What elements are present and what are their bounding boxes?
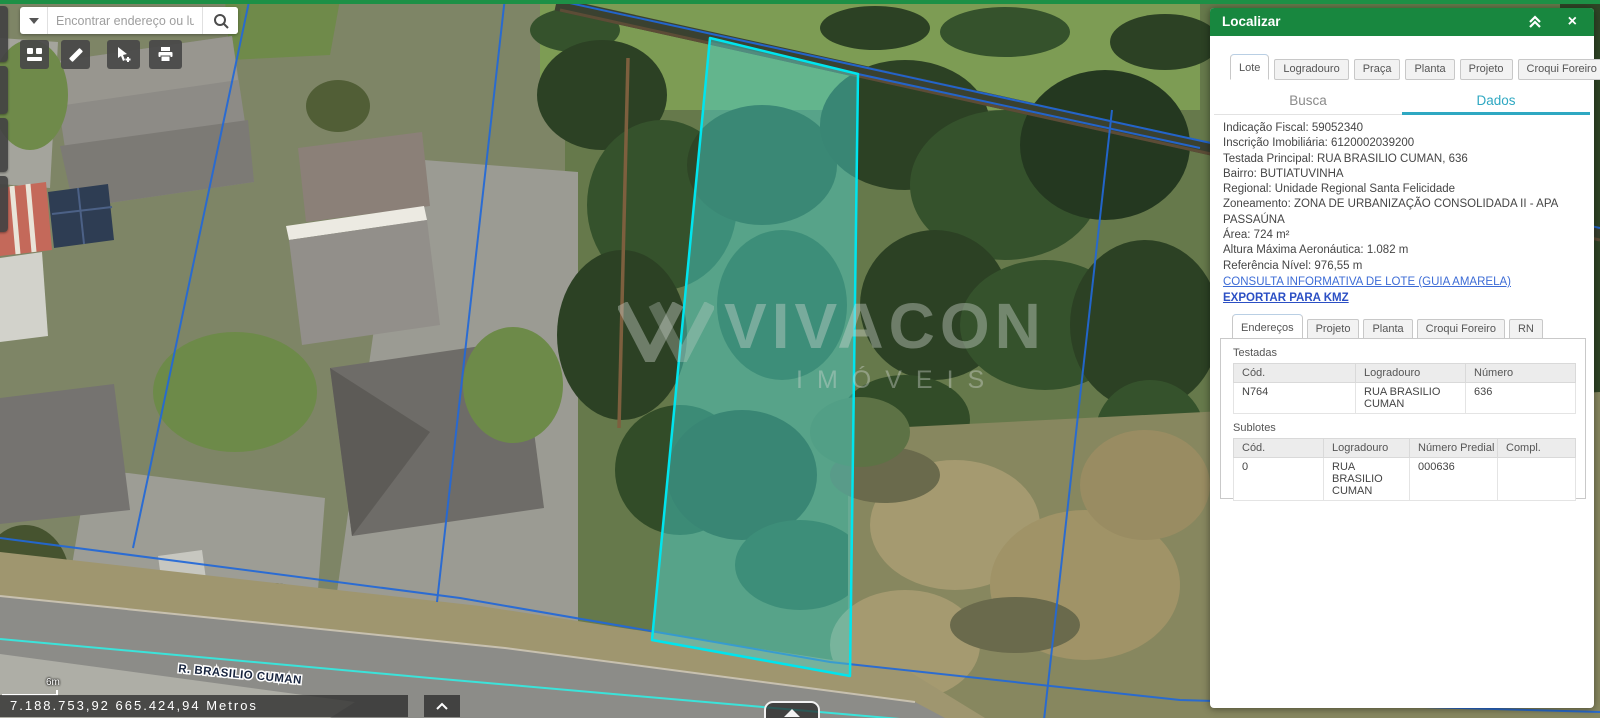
search-button[interactable]: [202, 7, 238, 34]
segment-busca[interactable]: Busca: [1214, 90, 1402, 115]
search-control: [20, 7, 238, 34]
sublotes-logradouro: RUA BRASILIO CUMAN: [1324, 458, 1410, 501]
tab-inner-croqui-foreiro[interactable]: Croqui Foreiro: [1417, 319, 1505, 340]
testadas-row: N764 RUA BRASILIO CUMAN 636: [1234, 383, 1576, 414]
testadas-cod: N764: [1234, 383, 1356, 414]
testadas-numero: 636: [1466, 383, 1576, 414]
double-chevron-up-icon: [1528, 15, 1542, 29]
testadas-title: Testadas: [1233, 347, 1585, 359]
sublotes-header-cod: Cód.: [1234, 439, 1324, 458]
tab-lote[interactable]: Lote: [1230, 54, 1269, 80]
top-green-bar: [0, 0, 1600, 4]
testadas-table: Cód. Logradouro Número N764 RUA BRASILIO…: [1233, 363, 1576, 414]
field-indicacao-fiscal: Indicação Fiscal: 59052340: [1223, 121, 1587, 136]
tab-croqui-foreiro[interactable]: Croqui Foreiro: [1518, 59, 1600, 80]
tab-rn[interactable]: RN: [1509, 319, 1543, 340]
tab-praca[interactable]: Praça: [1354, 59, 1401, 80]
caret-down-icon: [29, 18, 39, 24]
collapse-button[interactable]: [1528, 15, 1542, 34]
print-button[interactable]: [149, 40, 182, 69]
search-input[interactable]: [48, 7, 202, 34]
field-bairro: Bairro: BUTIATUVINHA: [1223, 167, 1587, 182]
chevron-up-icon: [435, 701, 449, 711]
panel-header: Localizar ×: [1210, 8, 1594, 36]
arrow-up-icon: [784, 709, 800, 717]
select-arrow-icon: [115, 46, 132, 63]
basemap-gallery-icon: [26, 46, 43, 63]
localizar-panel: Localizar × Lote Logradouro Praça Planta…: [1210, 8, 1594, 708]
attribute-table-expand-button[interactable]: [764, 701, 820, 718]
tab-logradouro[interactable]: Logradouro: [1274, 59, 1348, 80]
field-area: Área: 724 m²: [1223, 228, 1587, 243]
enderecos-content: Testadas Cód. Logradouro Número N764 RUA…: [1220, 338, 1586, 499]
edge-tool-button-4[interactable]: [0, 176, 8, 232]
feature-tabs: Lote Logradouro Praça Planta Projeto Cro…: [1230, 54, 1600, 80]
detail-tabs: Endereços Projeto Planta Croqui Foreiro …: [1232, 314, 1543, 340]
sublotes-compl: [1498, 458, 1576, 501]
tab-enderecos[interactable]: Endereços: [1232, 314, 1303, 340]
measure-button[interactable]: [61, 40, 90, 69]
sublotes-header-numero-predial: Número Predial: [1410, 439, 1498, 458]
edge-tool-button-2[interactable]: [0, 66, 8, 114]
field-altura-maxima: Altura Máxima Aeronáutica: 1.082 m: [1223, 243, 1587, 258]
basemap-gallery-button[interactable]: [20, 40, 49, 69]
search-icon: [212, 12, 230, 30]
edge-tool-button-1[interactable]: [0, 6, 8, 62]
testadas-header-cod: Cód.: [1234, 364, 1356, 383]
printer-icon: [157, 46, 174, 63]
ruler-icon: [67, 46, 85, 64]
edge-tool-button-3[interactable]: [0, 118, 8, 172]
field-inscricao-imobiliaria: Inscrição Imobiliária: 6120002039200: [1223, 136, 1587, 151]
field-testada-principal: Testada Principal: RUA BRASILIO CUMAN, 6…: [1223, 152, 1587, 167]
sublotes-row: 0 RUA BRASILIO CUMAN 000636: [1234, 458, 1576, 501]
testadas-header-logradouro: Logradouro: [1356, 364, 1466, 383]
sublotes-header-compl: Compl.: [1498, 439, 1576, 458]
app-window: R. BRASILIO CUMAN VIVACON IMÓVEIS: [0, 0, 1600, 718]
coordinates-readout: 7.188.753,92 665.424,94 Metros: [0, 695, 408, 717]
scale-label: 6m: [46, 677, 60, 688]
lot-data-block: Indicação Fiscal: 59052340 Inscrição Imo…: [1223, 121, 1587, 307]
sublotes-title: Sublotes: [1233, 422, 1585, 434]
map-toolbar: [20, 40, 182, 69]
coordinates-expand-button[interactable]: [424, 695, 460, 717]
busca-dados-switch: Busca Dados: [1214, 90, 1590, 115]
field-referencia-nivel: Referência Nível: 976,55 m: [1223, 259, 1587, 274]
tab-inner-planta[interactable]: Planta: [1363, 319, 1412, 340]
search-dropdown-button[interactable]: [20, 7, 48, 34]
sublotes-table: Cód. Logradouro Número Predial Compl. 0 …: [1233, 438, 1576, 501]
exportar-kmz-link[interactable]: EXPORTAR PARA KMZ: [1223, 291, 1587, 306]
sublotes-header-logradouro: Logradouro: [1324, 439, 1410, 458]
sublotes-cod: 0: [1234, 458, 1324, 501]
segment-dados[interactable]: Dados: [1402, 90, 1590, 115]
close-button[interactable]: ×: [1568, 12, 1577, 32]
sublotes-numero-predial: 000636: [1410, 458, 1498, 501]
tab-inner-projeto[interactable]: Projeto: [1307, 319, 1360, 340]
panel-title: Localizar: [1222, 8, 1281, 36]
field-regional: Regional: Unidade Regional Santa Felicid…: [1223, 182, 1587, 197]
consulta-informativa-link[interactable]: CONSULTA INFORMATIVA DE LOTE (GUIA AMARE…: [1223, 275, 1587, 290]
tab-planta[interactable]: Planta: [1405, 59, 1454, 80]
field-zoneamento: Zoneamento: ZONA DE URBANIZAÇÃO CONSOLID…: [1223, 197, 1587, 228]
testadas-header-numero: Número: [1466, 364, 1576, 383]
testadas-logradouro: RUA BRASILIO CUMAN: [1356, 383, 1466, 414]
tab-projeto[interactable]: Projeto: [1460, 59, 1513, 80]
select-features-button[interactable]: [107, 40, 140, 69]
